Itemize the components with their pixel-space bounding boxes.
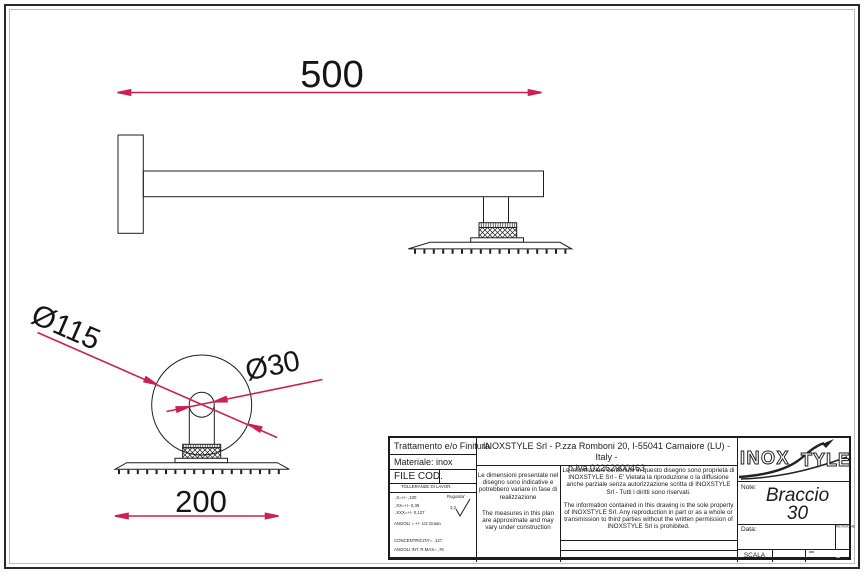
dimension-arm-length: 500 xyxy=(277,56,387,94)
title-block: Trattamento e/o Finitura Materiale: inox… xyxy=(388,436,851,560)
tolerance-xx: ,XX=+/- 0,36 xyxy=(395,504,419,509)
arrow xyxy=(176,407,189,412)
tolerance-xxx: ,XXX=+/- 0,127 xyxy=(395,511,425,516)
nut-collar-side xyxy=(479,223,517,228)
knurled-nut-front xyxy=(183,448,221,459)
tolerance-x: ,X=+/- ,100 xyxy=(395,496,416,501)
arrow xyxy=(214,397,227,402)
disclaimer-it: Le informazioni contenute in questo dise… xyxy=(562,467,735,496)
info-column: Le dimensioni presentate nel disegno son… xyxy=(477,472,559,531)
arrow xyxy=(115,513,128,518)
head-boss-front xyxy=(175,458,228,462)
dim-line-30 xyxy=(167,380,323,412)
arrow xyxy=(266,513,279,518)
revision-field-mark xyxy=(836,557,840,558)
nut-collar-front xyxy=(183,444,221,447)
arrow xyxy=(144,377,157,385)
arrow xyxy=(529,90,542,95)
internal-angles: ANGOLI INT. R.MAX= ,76 xyxy=(394,548,444,553)
drawing-sheet: 500 200 Ø115 Ø30 Trattamento e/o Finitur… xyxy=(0,0,864,573)
company-address: INOXSTYLE Srl - P.zza Romboni 20, I-5504… xyxy=(476,441,737,463)
inoxstyle-logo: INOX TYLE xyxy=(737,438,850,481)
sheet-field-mark xyxy=(809,551,814,553)
shower-arm xyxy=(143,171,543,197)
dimension-head-width: 200 xyxy=(146,486,256,517)
disclaimer-column: Le informazioni contenute in questo dise… xyxy=(562,467,735,531)
shower-head-side xyxy=(408,242,571,249)
revision-label: REVISIONE xyxy=(836,525,855,529)
roughness-check-icon xyxy=(455,498,473,518)
shower-head-front xyxy=(115,463,289,470)
date-label: Data: xyxy=(741,526,757,533)
tolerances-header: TOLLERANZE DI LAVOR. xyxy=(401,485,452,490)
disclaimer-en: The information contained in this drawin… xyxy=(562,502,735,531)
angles-tolerance: ANGOLI = +/- 1/2 Grado xyxy=(394,522,441,527)
file-code-label: FILE COD. xyxy=(394,471,443,483)
info-text-en: The measures in this plan are approximat… xyxy=(477,510,559,532)
head-boss-side xyxy=(471,238,524,243)
logo-text-inox: INOX xyxy=(740,448,790,468)
scale-label: SCALA xyxy=(737,552,772,559)
logo-flag xyxy=(822,439,834,448)
arrow xyxy=(118,90,131,95)
concentricity: CONCENTRICITA'= ,127 xyxy=(394,539,442,544)
note-value-line2: 30 xyxy=(750,504,845,524)
info-text-it: Le dimensioni presentate nel disegno son… xyxy=(477,472,559,501)
logo-text-tyle: TYLE xyxy=(801,450,850,470)
material-label: Materiale: inox xyxy=(394,457,453,468)
knurled-nut-side xyxy=(479,228,517,239)
side-view xyxy=(118,135,572,252)
arrow xyxy=(249,424,262,432)
wall-plate-side xyxy=(118,135,143,233)
